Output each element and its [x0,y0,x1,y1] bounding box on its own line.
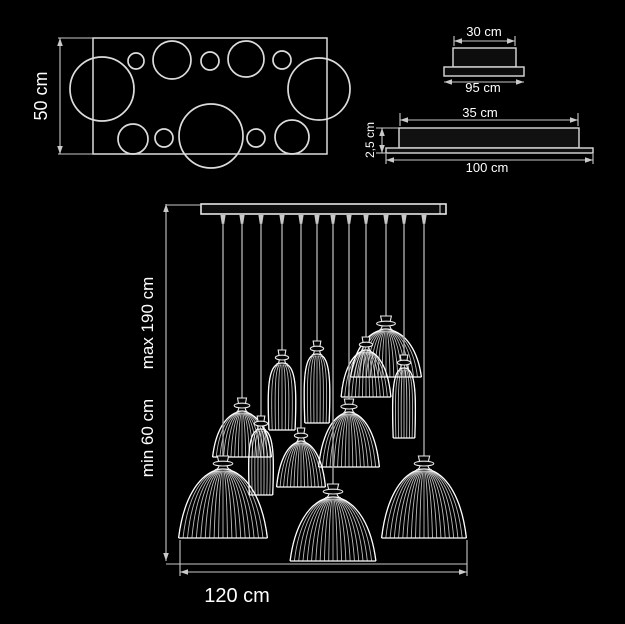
plan-circle [118,124,148,154]
shade-collar-ring [234,403,250,408]
shade-dome [382,469,467,538]
dim-arrowhead [180,569,188,575]
cord-drop-cone [346,215,351,224]
shade-rib [329,499,333,562]
fixture-min-height-label: min 60 cm [138,399,157,477]
shade-rib [386,471,417,539]
plan-circle [128,53,144,69]
shade-bell [268,363,296,430]
shade-rib [420,471,423,539]
shade-rib [238,413,241,458]
canopy-side-top-label: 30 cm [466,24,501,39]
shade-collar-ring [397,360,410,365]
canopy-side-bottom-label: 95 cm [465,80,500,95]
shade-dome [319,412,380,467]
canopy-side-geometry [444,36,524,85]
plan-circle [201,52,219,70]
cord-drop-cone [258,215,263,224]
plan-circle [179,104,243,168]
shade-rib [279,365,281,431]
plan-circle [228,41,264,77]
shade-rib [224,471,228,539]
shade-collar-ring [275,355,288,360]
fixture-geometry [163,204,467,576]
shade-rib [345,414,348,468]
canopy-side-base [444,67,524,76]
shade-rib [334,499,338,562]
shade-rib [340,499,372,562]
canopy-front-bottom-label: 100 cm [466,160,509,175]
shade-dome [277,441,326,487]
canopy-front-height-label: 2,5 cm [363,122,377,158]
fixture-elevation: max 190 cm min 60 cm 120 cm [138,204,467,607]
shade-rib [243,413,246,458]
cord-drop-cone [239,215,244,224]
shade-dome [290,497,376,561]
shade-rib [405,370,407,439]
cord-drop-cone [220,215,225,224]
cord-drop-cone [279,215,284,224]
plan-view: 50 cm [31,38,350,168]
cord-drop-cone [383,215,388,224]
shade-rib [302,443,305,488]
shade-bell [393,368,416,438]
diagram-page: 50 cm 30 cm 95 cm 35 cm 2,5 cm 100 cm ma… [0,0,625,624]
plan-circle [247,129,265,147]
shade-rib [183,471,216,539]
plan-circle [275,120,309,154]
fixture-canopy-bar [201,204,446,214]
cord-drop-cone [363,215,368,224]
plan-circle [288,58,350,120]
dim-arrowhead [444,79,452,85]
shade-bell [304,354,330,423]
shade-rib [318,356,320,424]
shade-rib [350,414,353,468]
shade-rib [431,471,462,539]
shade-rib [283,365,285,431]
shade-dome [179,469,268,538]
dim-arrowhead [400,117,408,123]
plan-rect [93,38,327,154]
shade-rib [425,471,428,539]
shade-rib [387,331,390,378]
plan-circle [153,41,191,79]
shade-collar-ring [294,433,307,438]
dim-arrowhead [507,38,515,44]
dim-arrowhead [516,79,524,85]
plan-circle [273,51,291,69]
shade-collar-ring [359,342,372,347]
shade-rib [294,499,326,562]
shade-collar-ring [341,404,357,409]
fixture-max-height-label: max 190 cm [138,277,157,370]
diagram-canvas: 50 cm 30 cm 95 cm 35 cm 2,5 cm 100 cm ma… [0,0,625,624]
dim-arrowhead [386,157,394,163]
cord-drop-cone [401,215,406,224]
shade-collar-ring [414,461,434,466]
shade-collar-ring [377,321,396,326]
cord-drop-cone [330,215,335,224]
dim-arrowhead [163,553,169,561]
dim-arrowhead [570,117,578,123]
plan-height-label: 50 cm [31,71,51,120]
dim-arrowhead [459,569,467,575]
shades [179,329,467,561]
shade-rib [314,356,316,424]
canopy-front-top-label: 35 cm [462,105,497,120]
shade-rib [401,370,403,439]
plan-geometry [57,38,350,168]
cord-drop-cone [421,215,426,224]
plan-circle [70,57,134,121]
canopy-side-body [453,48,516,67]
plan-circle [155,129,173,147]
canopy-side-view: 30 cm 95 cm [444,24,524,95]
dim-arrowhead [454,38,462,44]
canopy-front-body [399,128,579,148]
shade-collar-ring [310,346,323,351]
canopy-front-base [386,148,593,153]
dim-arrowhead [379,145,385,153]
shade-rib [298,443,301,488]
dim-arrowhead [585,157,593,163]
shade-collar-ring [254,421,267,426]
dim-arrowhead [57,146,63,154]
fixture-width-label: 120 cm [204,585,270,607]
shade-rib [219,471,223,539]
canopy-front-geometry [376,113,593,164]
cord-drop-cone [314,215,319,224]
shade-collar-ring [323,489,343,494]
canopy-front-view: 35 cm 2,5 cm 100 cm [363,105,593,175]
shade-rib [392,331,421,378]
cord-drop-cone [298,215,303,224]
dim-arrowhead [379,128,385,136]
shade-collar-ring [213,461,233,466]
dim-arrowhead [57,38,63,46]
shade-rib [262,431,264,496]
